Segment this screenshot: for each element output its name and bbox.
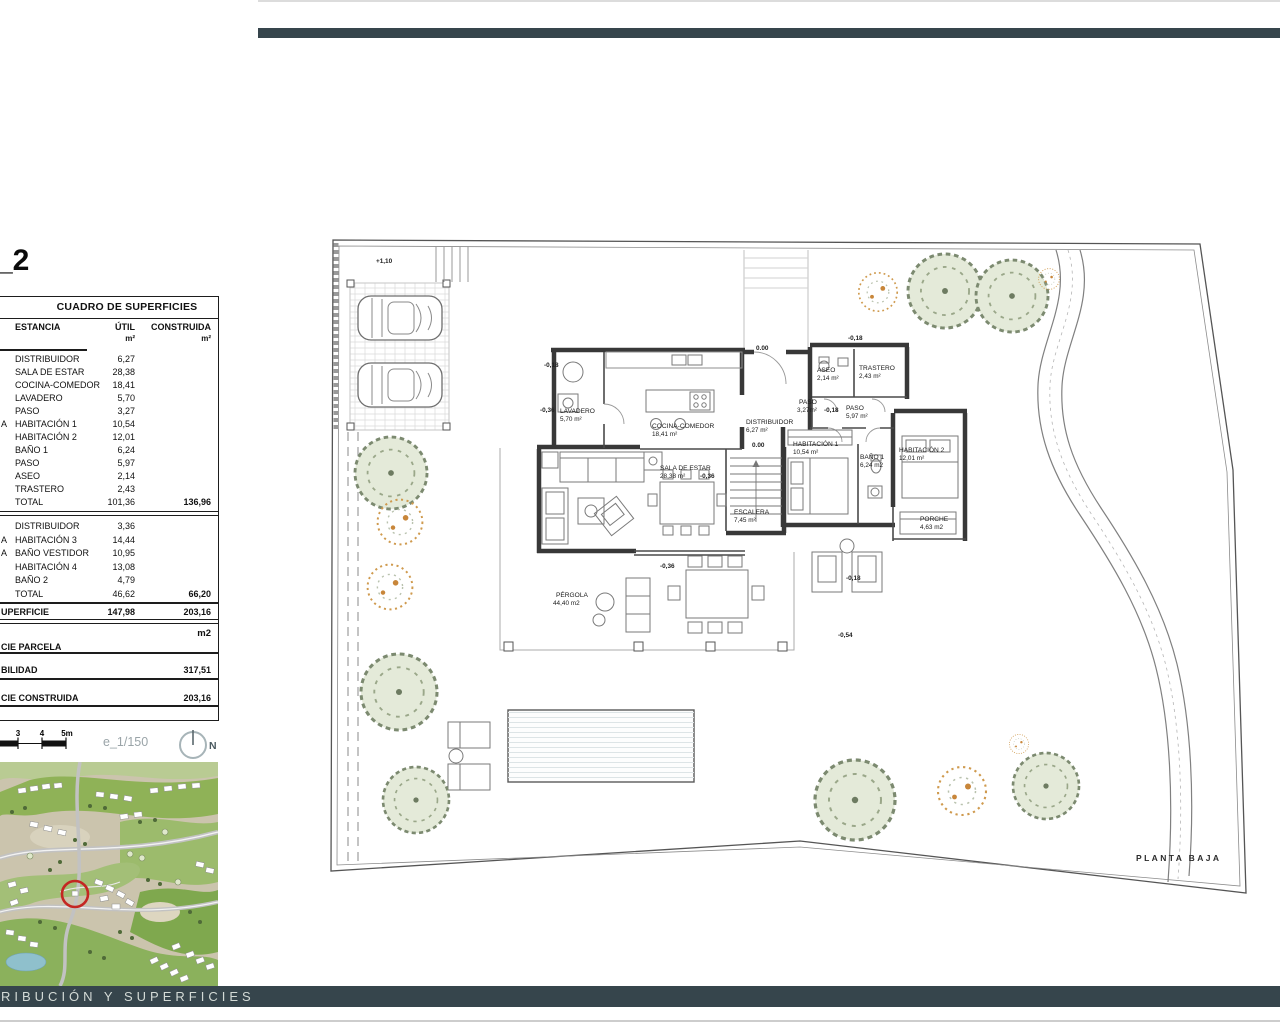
table-rule [0, 705, 218, 707]
table-rule [0, 318, 218, 319]
unit-util: m² [71, 334, 135, 343]
table-row: DISTRIBUIDOR6,27 [0, 354, 218, 367]
location-map [0, 762, 218, 986]
pool-area [448, 710, 694, 790]
svg-text:-0,18: -0,18 [846, 575, 861, 582]
svg-text:-0,54: -0,54 [838, 632, 853, 639]
svg-text:LAVADERO: LAVADERO [560, 408, 595, 415]
svg-text:-0,36: -0,36 [660, 563, 675, 570]
table-row: COCINA-COMEDOR18,41 [0, 380, 218, 393]
plot-boundary [331, 240, 1246, 893]
svg-text:PASO: PASO [846, 405, 864, 412]
car [358, 296, 442, 340]
svg-text:3,27m²: 3,27m² [797, 407, 817, 414]
entry-walkway [744, 250, 808, 350]
svg-text:18,41 m²: 18,41 m² [652, 431, 677, 438]
table-row: DISTRIBUIDOR3,36 [0, 521, 218, 534]
footer-title-bar: RIBUCIÓN Y SUPERFICIES [0, 986, 1280, 1007]
svg-text:5,97 m²: 5,97 m² [846, 413, 868, 420]
svg-text:-0,36: -0,36 [700, 473, 715, 480]
svg-text:PASO: PASO [799, 399, 817, 406]
cut-label-fragment: A [1, 548, 13, 558]
surface-table-title: CUADRO DE SUPERFICIES [43, 301, 211, 313]
edificabilidad-row: BILIDAD 317,51 [0, 665, 218, 678]
table-rule [0, 678, 218, 680]
cut-label-fragment: A [1, 419, 13, 429]
table-row: HABITACIÓN 413,08 [0, 562, 218, 575]
svg-text:0.00: 0.00 [756, 345, 769, 352]
table-total-row: TOTAL101,36136,96 [0, 497, 218, 510]
svg-text:TRASTERO: TRASTERO [859, 365, 895, 372]
table-row: BAÑO 16,24 [0, 445, 218, 458]
exterior-stair [436, 246, 468, 282]
svg-text:-0,36: -0,36 [540, 407, 555, 414]
table-unit-row: m² m² [0, 334, 218, 347]
map-pond [6, 953, 46, 971]
table-row: PASO3,27 [0, 406, 218, 419]
svg-text:PÉRGOLA: PÉRGOLA [556, 590, 588, 599]
svg-text:ASEO: ASEO [817, 367, 835, 374]
parcela-label: CIE PARCELA [1, 642, 61, 652]
north-arrow-icon: N [180, 730, 217, 758]
col-util: ÚTIL [71, 322, 135, 332]
svg-text:5,70 m²: 5,70 m² [560, 416, 582, 423]
scale-tick-5m: 5m [61, 729, 73, 738]
sheet-title-fragment: _2 [0, 244, 29, 278]
svg-text:0.00: 0.00 [752, 442, 765, 449]
svg-text:HABITACIÓN 1: HABITACIÓN 1 [793, 439, 839, 448]
table-rule [0, 652, 218, 654]
table-row: SALA DE ESTAR28,38 [0, 367, 218, 380]
bottom-rule [0, 1020, 1280, 1022]
table-row: PASO5,97 [0, 458, 218, 471]
svg-text:7,45 m²: 7,45 m² [734, 517, 756, 524]
svg-text:2,14 m²: 2,14 m² [817, 375, 839, 382]
table-row: TRASTERO2,43 [0, 484, 218, 497]
table-rule [0, 602, 218, 604]
unit-construida: m² [141, 334, 211, 343]
svg-text:28,38 m²: 28,38 m² [660, 473, 685, 480]
svg-text:SALA DE ESTAR: SALA DE ESTAR [660, 465, 711, 472]
svg-text:DISTRIBUIDOR: DISTRIBUIDOR [746, 419, 793, 426]
table-rule [0, 515, 218, 516]
carport: +1,10 [347, 246, 468, 430]
room-labels: LAVADERO 5,70 m² COCINA-COMEDOR 18,41 m²… [553, 365, 949, 607]
table-row: HABITACIÓN 110,54 [0, 419, 218, 432]
svg-text:BAÑO 1: BAÑO 1 [860, 452, 885, 461]
scale-bar: 3 4 5m e_1/150 N [0, 726, 232, 762]
svg-text:44,40 m2: 44,40 m2 [553, 600, 580, 607]
car [358, 363, 442, 407]
plan-caption: PLANTA BAJA [1136, 853, 1221, 863]
svg-text:ESCALERA: ESCALERA [734, 509, 770, 516]
level-label: +1,10 [376, 258, 393, 265]
table-row: BAÑO 24,79 [0, 575, 218, 588]
svg-text:COCINA-COMEDOR: COCINA-COMEDOR [652, 423, 715, 430]
svg-text:PORCHE: PORCHE [920, 516, 949, 523]
col-construida: CONSTRUIDA [141, 322, 211, 332]
elevation-labels: -0,18 -0,36 0.00 0.00 -0,18 -0,36 -0,18 … [540, 335, 863, 639]
footer-title: RIBUCIÓN Y SUPERFICIES [0, 986, 1280, 1007]
table-rule [0, 511, 218, 512]
svg-text:6,27 m²: 6,27 m² [746, 427, 768, 434]
table-row: BAÑO VESTIDOR10,95 [0, 548, 218, 561]
top-thin-rule [258, 0, 1280, 2]
svg-text:6,24 m2: 6,24 m2 [860, 462, 884, 469]
col-estancia: ESTANCIA [15, 322, 60, 332]
table-rule [0, 623, 218, 624]
garden-trees [355, 254, 1079, 840]
site-plan-drawing: +1,10 [320, 224, 1260, 924]
table-heavy-rule [0, 349, 87, 351]
scale-tick-4: 4 [40, 729, 45, 738]
table-row: HABITACIÓN 314,44 [0, 535, 218, 548]
north-label: N [209, 740, 217, 752]
svg-text:-0,18: -0,18 [544, 362, 559, 369]
surface-table: CUADRO DE SUPERFICIES ESTANCIA ÚTIL CONS… [0, 296, 219, 721]
svg-text:-0,18: -0,18 [824, 407, 839, 414]
table-rule [0, 619, 218, 620]
unit-note: m2 [141, 628, 211, 639]
table-row: LAVADERO5,70 [0, 393, 218, 406]
svg-text:4,63 m2: 4,63 m2 [920, 524, 944, 531]
svg-text:-0,18: -0,18 [848, 335, 863, 342]
svg-text:HABITACIÓN 2: HABITACIÓN 2 [899, 445, 945, 454]
svg-text:12,01 m²: 12,01 m² [899, 455, 924, 462]
scale-text: e_1/150 [103, 735, 148, 749]
scale-tick-3: 3 [16, 729, 21, 738]
table-total-row: TOTAL46,6266,20 [0, 589, 218, 602]
svg-text:2,43 m²: 2,43 m² [859, 373, 881, 380]
table-row: HABITACIÓN 212,01 [0, 432, 218, 445]
cut-label-fragment: A [1, 535, 13, 545]
svg-text:10,54 m²: 10,54 m² [793, 449, 818, 456]
table-row: ASEO2,14 [0, 471, 218, 484]
top-accent-bar [258, 28, 1280, 38]
